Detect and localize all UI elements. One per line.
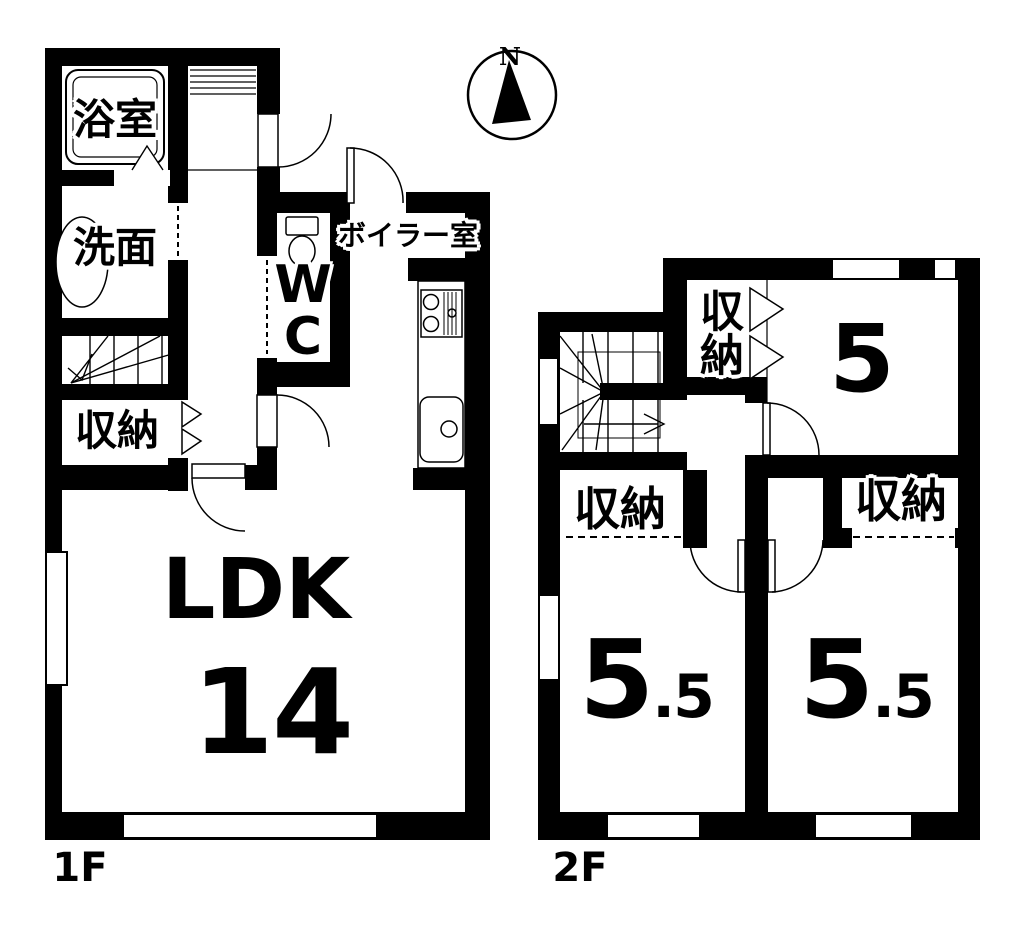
floor2-label: 2F (552, 848, 607, 888)
ldk-area-label: 14 (192, 653, 352, 771)
washroom-label: 洗面 (73, 227, 157, 269)
window (934, 259, 956, 279)
entrance-steps (188, 70, 257, 170)
room55-right-frac: .5 (872, 662, 933, 732)
sink-icon (420, 397, 463, 462)
window (815, 814, 912, 838)
window (539, 358, 558, 425)
boiler-room-label: ボイラー室 (338, 222, 478, 250)
storage-1f-label: 収納 (75, 410, 159, 452)
window (832, 259, 900, 279)
storage-2f-top-label: 収納 (695, 288, 739, 376)
room55-left-main: 5 (579, 618, 652, 743)
kitchen-counter (418, 281, 465, 468)
room55-left-frac: .5 (652, 662, 713, 732)
window (607, 814, 700, 838)
sliding-doors-1f (178, 206, 267, 354)
floor-plan-page: 浴室 洗面 収納 W C ボイラー室 LDK 14 1F 収納 5 収納 収納 … (0, 0, 1024, 929)
storage-2f-right-label: 収納 (855, 478, 947, 524)
storage-2f-left-label: 収納 (574, 486, 666, 532)
room55-right-label: 5.5 (799, 627, 933, 735)
compass-north-label: N (499, 45, 521, 69)
window (46, 552, 67, 685)
room55-left-label: 5.5 (579, 627, 713, 735)
window (123, 814, 377, 838)
floor1-label: 1F (52, 848, 107, 888)
room55-right-main: 5 (799, 618, 872, 743)
room5-area-label: 5 (829, 313, 892, 407)
window (539, 595, 559, 680)
bath-label: 浴室 (73, 99, 157, 141)
ldk-label: LDK (162, 547, 350, 631)
wc-label: W C (274, 259, 331, 363)
